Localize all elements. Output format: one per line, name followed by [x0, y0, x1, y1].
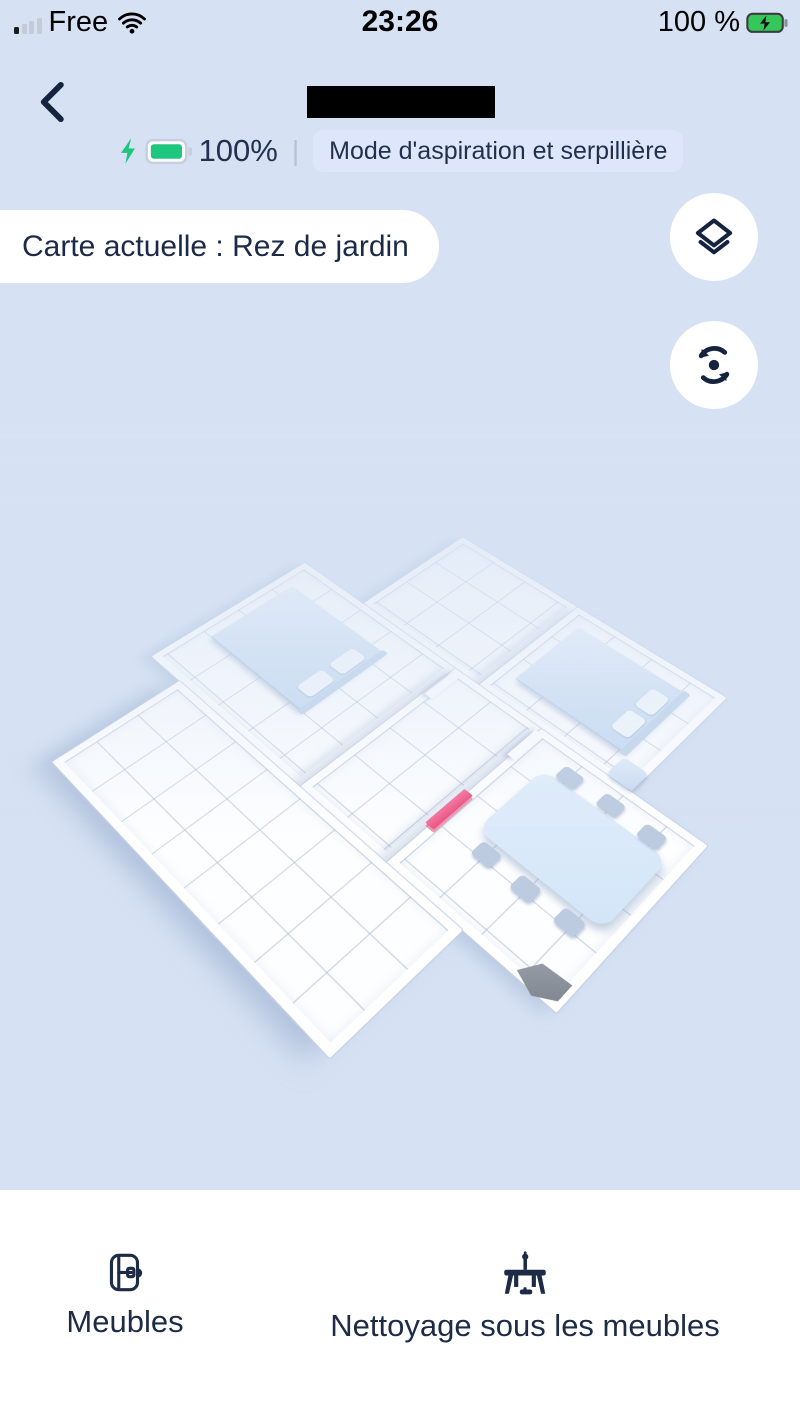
robot-battery-label: 100% — [199, 133, 278, 169]
furniture-icon — [100, 1248, 150, 1298]
tab-meubles-label: Meubles — [66, 1304, 183, 1340]
rotate-icon — [691, 342, 737, 388]
status-bar: Free 23:26 100 % — [0, 0, 800, 44]
map-rotate-button[interactable] — [670, 321, 758, 409]
bottom-bar: Meubles Nettoyage sous les meubles — [0, 1190, 800, 1422]
back-button[interactable] — [30, 78, 78, 126]
clean-under-furniture-icon — [498, 1248, 552, 1302]
tab-nettoyage-label: Nettoyage sous les meubles — [330, 1308, 719, 1344]
charging-bolt-icon — [117, 137, 139, 165]
robot-battery: 100% — [117, 133, 278, 169]
chevron-left-icon — [30, 78, 78, 126]
layers-icon — [691, 214, 737, 260]
map-canvas[interactable] — [0, 420, 800, 1200]
map-layers-button[interactable] — [670, 193, 758, 281]
robot-battery-icon — [145, 138, 193, 165]
current-map-pill[interactable]: Carte actuelle : Rez de jardin — [0, 210, 439, 283]
app-screen: Free 23:26 100 % — [0, 0, 800, 1422]
robot-state-row: 100% | Mode d'aspiration et serpillière — [0, 128, 800, 174]
battery-percent-label: 100 % — [658, 6, 740, 39]
current-map-label: Carte actuelle : Rez de jardin — [22, 230, 409, 264]
battery-charging-icon — [746, 12, 788, 34]
tab-nettoyage-sous-meubles[interactable]: Nettoyage sous les meubles — [300, 1248, 750, 1344]
tab-meubles[interactable]: Meubles — [25, 1248, 225, 1340]
device-title-redacted — [307, 86, 495, 118]
floor-plan — [26, 502, 800, 1159]
cleaning-mode-badge[interactable]: Mode d'aspiration et serpillière — [313, 130, 683, 172]
divider: | — [290, 135, 301, 167]
